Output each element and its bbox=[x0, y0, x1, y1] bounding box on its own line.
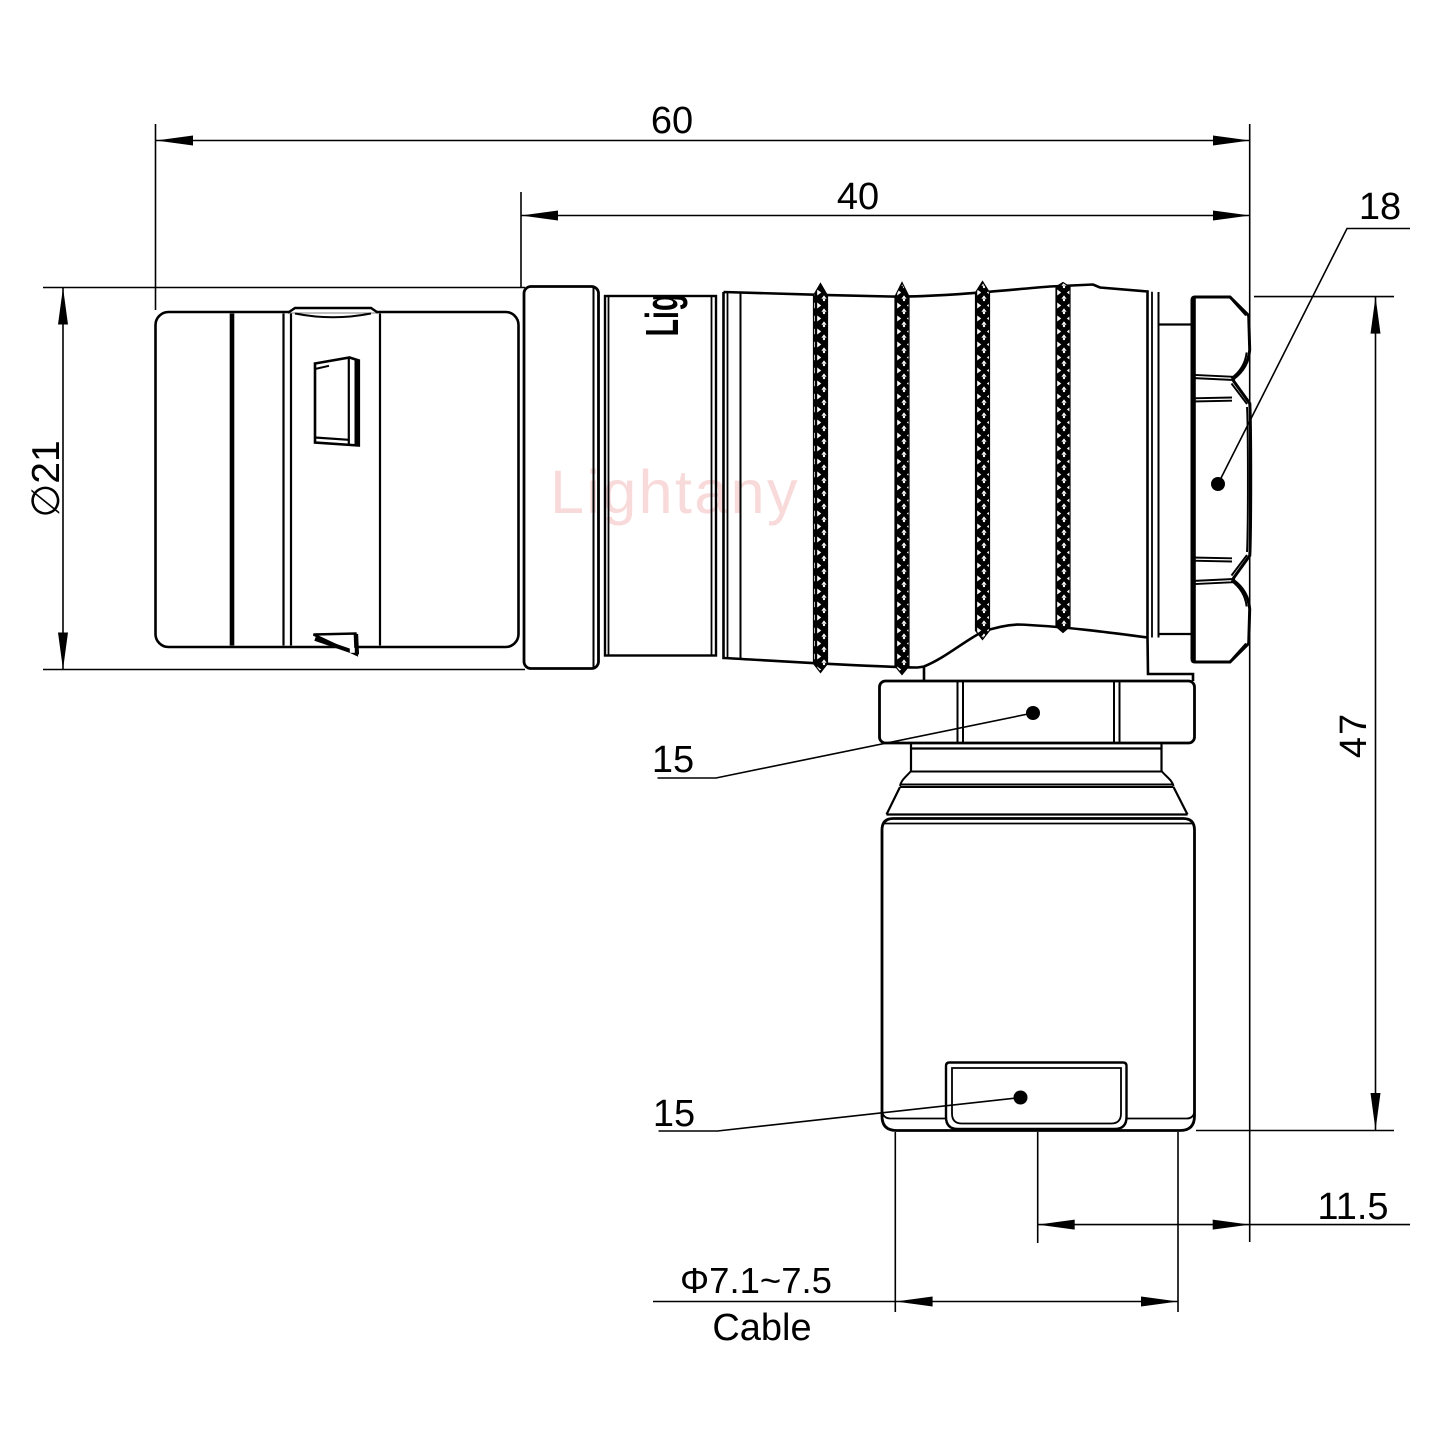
svg-text:Φ7.1~7.5: Φ7.1~7.5 bbox=[680, 1260, 832, 1301]
svg-text:18: 18 bbox=[1359, 186, 1401, 228]
svg-text:Lightany: Lightany bbox=[550, 458, 800, 526]
svg-text:15: 15 bbox=[652, 739, 694, 781]
svg-text:40: 40 bbox=[837, 176, 879, 218]
svg-text:47: 47 bbox=[1333, 712, 1375, 758]
svg-text:15: 15 bbox=[653, 1093, 695, 1135]
svg-text:Lig: Lig bbox=[637, 294, 689, 337]
svg-text:11.5: 11.5 bbox=[1317, 1186, 1388, 1228]
svg-text:60: 60 bbox=[651, 100, 693, 142]
svg-text:∅21: ∅21 bbox=[25, 440, 68, 517]
svg-text:Cable: Cable bbox=[712, 1307, 811, 1349]
